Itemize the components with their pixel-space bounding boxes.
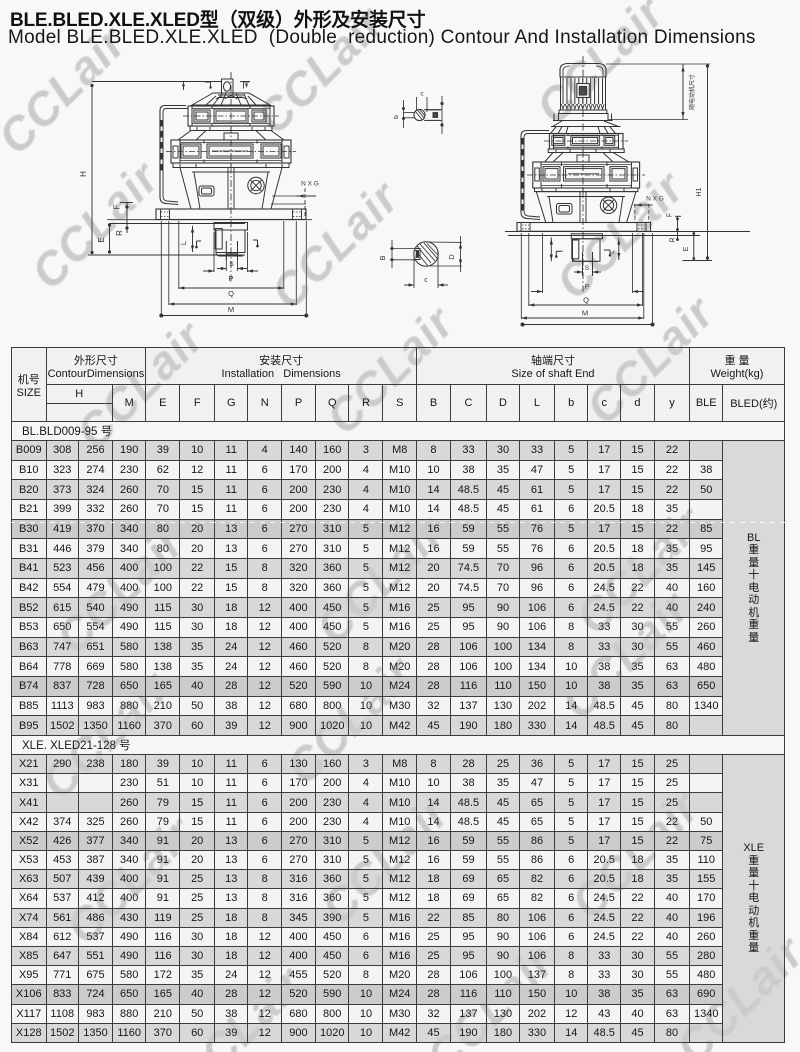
svg-text:L: L [179,241,188,245]
svg-text:Q: Q [228,289,234,298]
svg-text:随电动机尺寸: 随电动机尺寸 [688,74,696,110]
svg-text:R: R [670,237,677,242]
svg-text:B: B [378,255,387,260]
svg-text:P: P [228,274,233,283]
svg-text:H: H [79,171,88,177]
svg-text:D: D [447,254,456,260]
svg-text:H1: H1 [696,187,703,196]
svg-text:S: S [229,261,234,268]
svg-text:c: c [424,277,428,284]
svg-text:N X G: N X G [301,181,319,188]
svg-text:M: M [228,305,234,314]
svg-text:M: M [582,309,588,318]
svg-text:c: c [420,91,424,98]
svg-text:E: E [683,246,690,251]
svg-text:b: b [393,115,400,119]
